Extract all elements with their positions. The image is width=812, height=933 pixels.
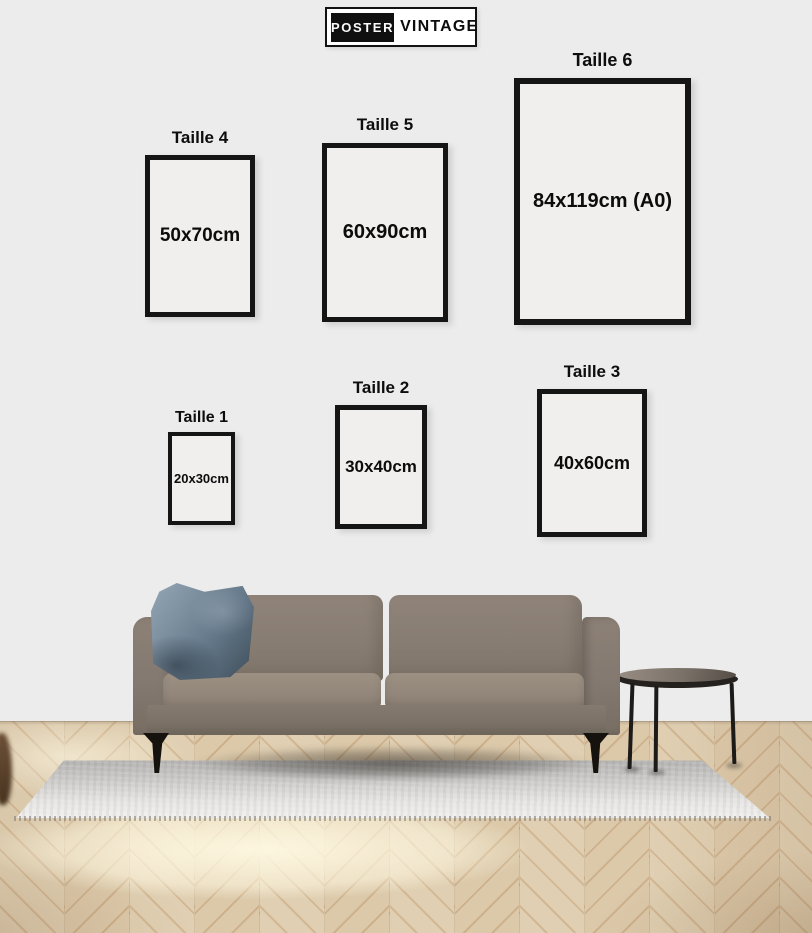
table-leg-shadow <box>624 767 640 772</box>
poster-frame-taille-6: 84x119cm (A0) <box>514 78 691 325</box>
poster-size-guide-scene: POSTER VINTAGE Taille 4 50x70cm Taille 5… <box>0 0 812 933</box>
brand-logo: POSTER VINTAGE <box>325 7 477 47</box>
brand-logo-vintage-text: VINTAGE <box>400 18 478 36</box>
frame-label-taille-2: Taille 2 <box>335 378 427 398</box>
frame-label-taille-3: Taille 3 <box>537 362 647 382</box>
frame-size-taille-5: 60x90cm <box>343 221 428 244</box>
frame-label-taille-5: Taille 5 <box>322 115 448 135</box>
side-table-top-surface <box>619 668 736 682</box>
sofa-base <box>147 705 606 735</box>
rug-fringe <box>14 816 774 821</box>
sofa-back-cushion-right <box>389 595 582 681</box>
frame-label-taille-4: Taille 4 <box>145 128 255 148</box>
frame-size-taille-2: 30x40cm <box>345 457 417 477</box>
poster-frame-taille-5: 60x90cm <box>322 143 448 322</box>
frame-size-taille-1: 20x30cm <box>174 471 229 486</box>
brand-logo-poster-text: POSTER <box>331 13 394 42</box>
poster-frame-taille-2: 30x40cm <box>335 405 427 529</box>
side-table-leg <box>654 686 659 772</box>
frame-size-taille-6: 84x119cm (A0) <box>533 190 672 213</box>
poster-frame-taille-1: 20x30cm <box>168 432 235 525</box>
poster-frame-taille-3: 40x60cm <box>537 389 647 537</box>
frame-size-taille-3: 40x60cm <box>554 453 630 474</box>
frame-label-taille-6: Taille 6 <box>514 50 691 71</box>
frame-label-taille-1: Taille 1 <box>168 409 235 427</box>
poster-frame-taille-4: 50x70cm <box>145 155 255 317</box>
frame-size-taille-4: 50x70cm <box>160 225 240 247</box>
sofa-floor-shadow <box>126 742 660 798</box>
throw-pillow <box>151 583 254 680</box>
